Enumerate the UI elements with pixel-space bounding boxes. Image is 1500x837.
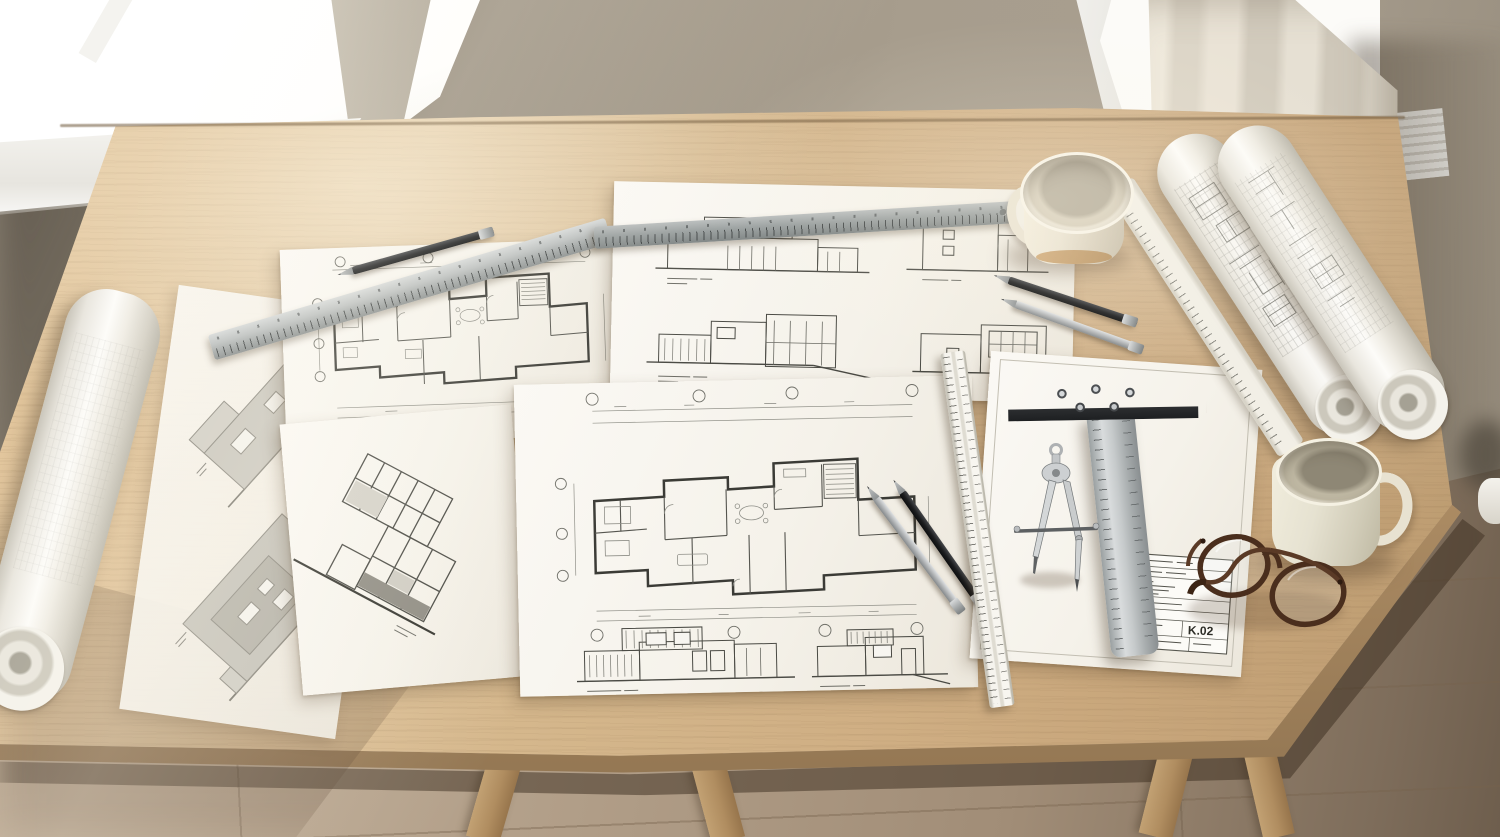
compass — [1008, 440, 1103, 600]
photo-architect-desk: K.02 — [0, 0, 1500, 837]
mug-opening — [1276, 438, 1382, 506]
mug-opening — [1020, 152, 1134, 234]
mug-foot — [1036, 250, 1112, 264]
section-drawing — [280, 404, 535, 695]
sheet-section — [280, 404, 535, 695]
mug-top — [1012, 148, 1136, 274]
plant-pot — [1478, 478, 1500, 524]
glasses — [1176, 518, 1356, 650]
